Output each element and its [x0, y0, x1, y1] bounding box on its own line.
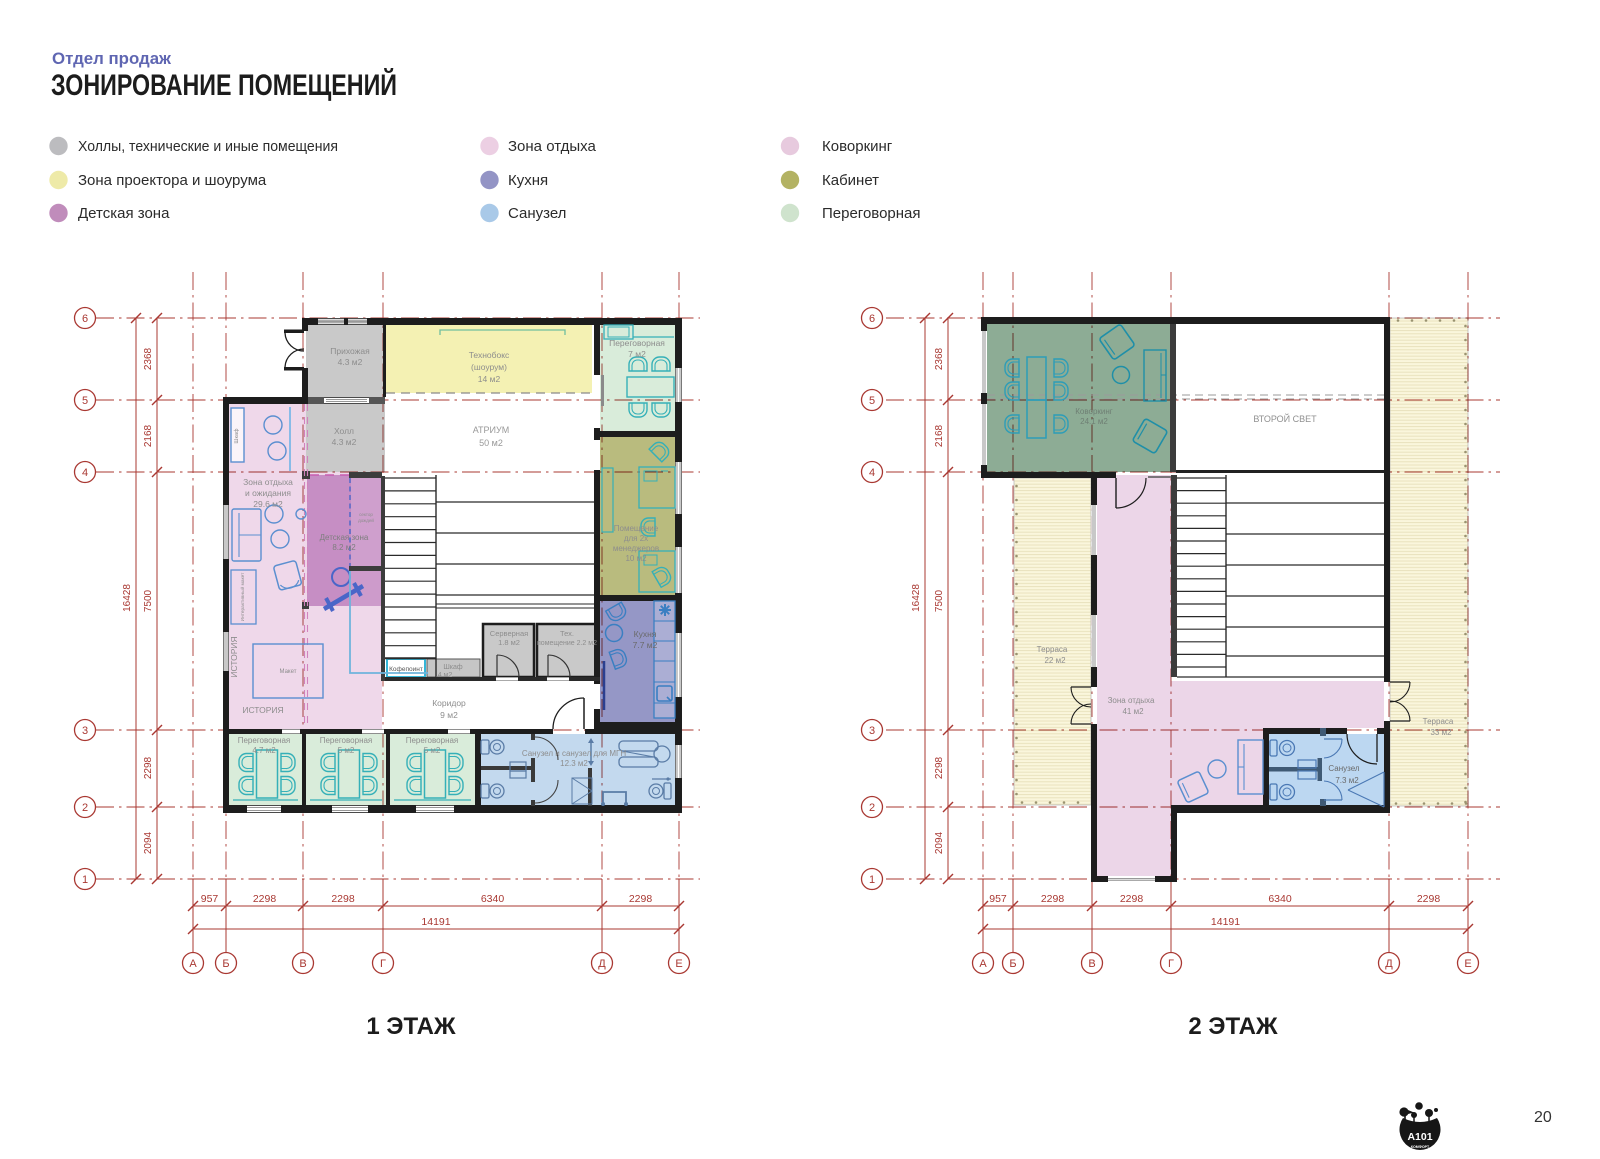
- svg-text:Г: Г: [380, 958, 386, 970]
- svg-text:2298: 2298: [629, 893, 653, 905]
- svg-text:Коворкинг: Коворкинг: [822, 138, 893, 155]
- svg-text:Кофепоинт: Кофепоинт: [389, 666, 423, 673]
- svg-text:Б: Б: [1009, 958, 1016, 970]
- svg-text:Переговорная: Переговорная: [238, 736, 291, 745]
- svg-text:Зона отдыха: Зона отдыха: [1108, 696, 1155, 705]
- svg-text:Переговорная: Переговорная: [822, 205, 921, 222]
- svg-text:Отдел продаж: Отдел продаж: [52, 49, 172, 68]
- svg-text:2368: 2368: [934, 347, 945, 370]
- svg-text:Е: Е: [1464, 958, 1471, 970]
- svg-text:24.1 м2: 24.1 м2: [1080, 417, 1108, 426]
- svg-text:7500: 7500: [143, 589, 154, 612]
- svg-text:Переговорная: Переговорная: [406, 736, 459, 745]
- svg-text:6: 6: [82, 313, 88, 325]
- svg-text:1.8 м2: 1.8 м2: [498, 638, 520, 647]
- svg-text:Санузел: Санузел: [1328, 764, 1359, 773]
- svg-text:7.3 м2: 7.3 м2: [1335, 776, 1359, 785]
- svg-text:4.3 м2: 4.3 м2: [332, 437, 357, 447]
- svg-text:2: 2: [82, 802, 88, 814]
- svg-text:1 ЭТАЖ: 1 ЭТАЖ: [366, 1013, 456, 1040]
- svg-text:3: 3: [869, 725, 875, 737]
- svg-text:50 м2: 50 м2: [479, 438, 503, 448]
- svg-text:16428: 16428: [911, 584, 922, 612]
- svg-text:2094: 2094: [143, 831, 154, 854]
- svg-text:А: А: [189, 958, 197, 970]
- svg-text:29.6 м2: 29.6 м2: [253, 499, 283, 509]
- svg-text:957: 957: [201, 893, 219, 905]
- svg-text:Детская зона: Детская зона: [320, 533, 369, 542]
- svg-text:Холлы, технические и иные поме: Холлы, технические и иные помещения: [78, 138, 338, 155]
- svg-text:2298: 2298: [1417, 893, 1441, 905]
- svg-text:Терраса: Терраса: [1423, 717, 1454, 726]
- svg-text:В: В: [299, 958, 306, 970]
- svg-text:6340: 6340: [481, 893, 505, 905]
- svg-text:2: 2: [869, 802, 875, 814]
- svg-text:В: В: [1088, 958, 1095, 970]
- svg-text:Зона проектора и шоурума: Зона проектора и шоурума: [78, 172, 267, 189]
- svg-text:2094: 2094: [934, 831, 945, 854]
- svg-text:и ожидания: и ожидания: [245, 488, 291, 498]
- svg-text:Шкаф: Шкаф: [234, 428, 240, 444]
- svg-text:16428: 16428: [122, 584, 133, 612]
- svg-text:Г: Г: [1168, 958, 1174, 970]
- svg-text:помещение 2.2 м2: помещение 2.2 м2: [537, 640, 597, 647]
- svg-text:Зона отдыха: Зона отдыха: [508, 138, 596, 155]
- svg-text:22 м2: 22 м2: [1044, 656, 1066, 665]
- svg-text:2368: 2368: [143, 347, 154, 370]
- svg-text:14 м2: 14 м2: [478, 374, 501, 384]
- svg-text:2298: 2298: [331, 893, 355, 905]
- svg-text:ВТОРОЙ СВЕТ: ВТОРОЙ СВЕТ: [1253, 413, 1317, 424]
- svg-text:4.7 м2: 4.7 м2: [252, 746, 276, 755]
- svg-text:2 ЭТАЖ: 2 ЭТАЖ: [1188, 1013, 1278, 1040]
- svg-text:20: 20: [1534, 1109, 1552, 1126]
- svg-text:Коворкинг: Коворкинг: [1075, 407, 1113, 416]
- svg-text:9 м2: 9 м2: [440, 710, 458, 720]
- svg-text:2168: 2168: [934, 424, 945, 447]
- svg-text:А: А: [979, 958, 987, 970]
- svg-text:12.3 м2: 12.3 м2: [560, 759, 588, 768]
- svg-text:ИСТОРИЯ: ИСТОРИЯ: [229, 636, 239, 677]
- svg-text:Серверная: Серверная: [490, 629, 528, 638]
- svg-text:Тех.: Тех.: [560, 629, 574, 638]
- svg-text:Технобокс: Технобокс: [469, 350, 510, 360]
- svg-text:Прихожая: Прихожая: [330, 346, 370, 356]
- svg-text:Терраса: Терраса: [1037, 645, 1068, 654]
- svg-text:957: 957: [989, 893, 1007, 905]
- svg-text:5: 5: [869, 395, 875, 407]
- svg-text:33 м2: 33 м2: [1430, 728, 1452, 737]
- svg-text:14191: 14191: [1211, 916, 1240, 928]
- svg-text:2298: 2298: [253, 893, 277, 905]
- svg-text:Детская зона: Детская зона: [78, 205, 170, 222]
- svg-text:Санузел: Санузел: [508, 205, 566, 222]
- svg-text:менеджеров: менеджеров: [613, 544, 659, 553]
- svg-text:Интерактивный макет: Интерактивный макет: [239, 572, 246, 622]
- svg-text:4.3 м2: 4.3 м2: [338, 357, 363, 367]
- svg-text:4: 4: [82, 467, 88, 479]
- svg-text:А101: А101: [1407, 1131, 1432, 1143]
- svg-text:1: 1: [82, 874, 88, 886]
- svg-text:41 м2: 41 м2: [1122, 707, 1144, 716]
- svg-text:КОМФОРТ: КОМФОРТ: [1411, 1145, 1430, 1149]
- svg-text:Кухня: Кухня: [508, 172, 548, 189]
- svg-text:7 м2: 7 м2: [628, 349, 646, 359]
- svg-text:(шоурум): (шоурум): [471, 362, 507, 372]
- svg-text:Санузел и санузел для МГН: Санузел и санузел для МГН: [522, 749, 626, 758]
- svg-text:2168: 2168: [143, 424, 154, 447]
- svg-text:5 м2: 5 м2: [424, 746, 441, 755]
- svg-text:6: 6: [869, 313, 875, 325]
- svg-text:Переговорная: Переговорная: [609, 338, 665, 348]
- svg-text:для 2х: для 2х: [624, 534, 648, 543]
- svg-text:6340: 6340: [1268, 893, 1292, 905]
- svg-text:2298: 2298: [143, 756, 154, 779]
- svg-text:Е: Е: [675, 958, 682, 970]
- svg-text:АТРИУМ: АТРИУМ: [473, 425, 509, 435]
- svg-text:сектор: сектор: [359, 512, 373, 517]
- svg-text:Кабинет: Кабинет: [822, 172, 879, 189]
- svg-text:Холл: Холл: [334, 426, 354, 436]
- svg-text:Переговорная: Переговорная: [320, 736, 373, 745]
- svg-text:Коридор: Коридор: [432, 698, 466, 708]
- svg-text:7500: 7500: [934, 589, 945, 612]
- svg-text:2298: 2298: [1120, 893, 1144, 905]
- svg-text:14191: 14191: [421, 916, 450, 928]
- svg-text:8.2 м2: 8.2 м2: [332, 543, 356, 552]
- svg-text:Д: Д: [598, 958, 606, 970]
- svg-text:2298: 2298: [1041, 893, 1065, 905]
- svg-text:10 м2: 10 м2: [625, 554, 647, 563]
- svg-text:5 м2: 5 м2: [338, 746, 355, 755]
- svg-text:1: 1: [869, 874, 875, 886]
- svg-text:Кухня: Кухня: [634, 629, 657, 639]
- svg-text:Макет: Макет: [280, 669, 297, 675]
- svg-text:5: 5: [82, 395, 88, 407]
- svg-text:дождей: дождей: [358, 517, 374, 523]
- svg-text:2298: 2298: [934, 756, 945, 779]
- svg-text:3: 3: [82, 725, 88, 737]
- svg-text:Д: Д: [1385, 958, 1393, 970]
- svg-text:.4 м2: .4 м2: [436, 672, 453, 679]
- svg-text:7.7 м2: 7.7 м2: [633, 640, 658, 650]
- svg-text:Б: Б: [222, 958, 229, 970]
- svg-text:Шкаф: Шкаф: [443, 664, 463, 671]
- svg-text:ИСТОРИЯ: ИСТОРИЯ: [242, 705, 283, 715]
- svg-text:4: 4: [869, 467, 875, 479]
- svg-text:ЗОНИРОВАНИЕ ПОМЕЩЕНИЙ: ЗОНИРОВАНИЕ ПОМЕЩЕНИЙ: [51, 68, 397, 102]
- svg-text:Помещение: Помещение: [614, 524, 659, 533]
- svg-text:Зона отдыха: Зона отдыха: [243, 477, 293, 487]
